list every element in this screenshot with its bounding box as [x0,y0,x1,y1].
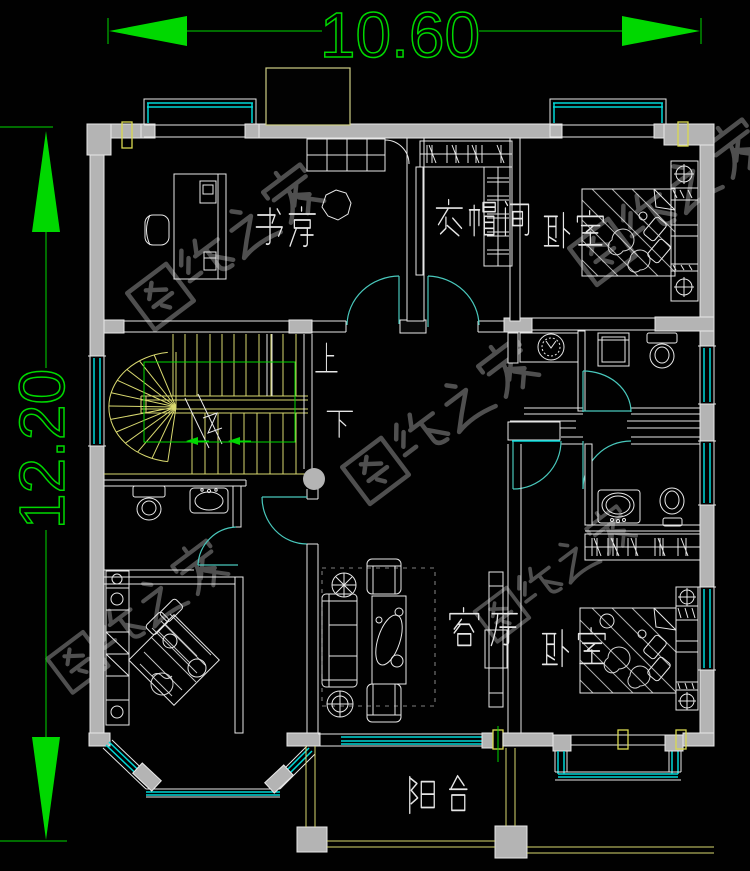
svg-text:10.60: 10.60 [320,0,480,71]
svg-text:12.20: 12.20 [6,369,78,529]
